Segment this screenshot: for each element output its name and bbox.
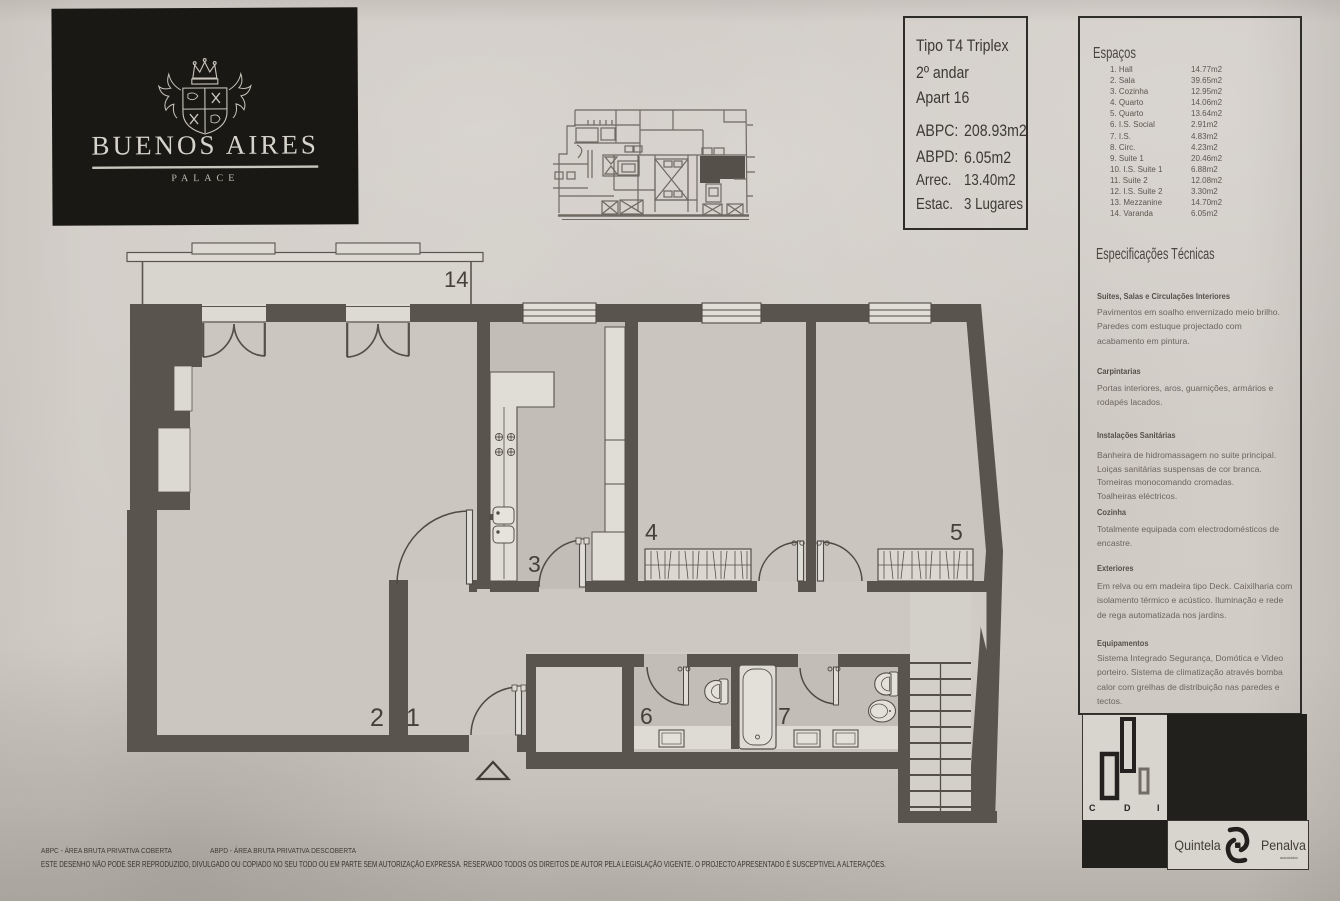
svg-text:4: 4 (645, 519, 658, 545)
svg-text:1: 1 (406, 704, 420, 732)
svg-text:3: 3 (528, 551, 541, 577)
svg-text:C: C (1089, 803, 1096, 813)
svg-text:D: D (1124, 803, 1131, 813)
svg-text:Quintela: Quintela (1174, 838, 1221, 854)
svg-text:2: 2 (370, 704, 384, 732)
svg-text:5: 5 (950, 519, 963, 545)
svg-text:I: I (1157, 803, 1160, 813)
svg-text:Penalva: Penalva (1261, 838, 1307, 854)
svg-text:associados: associados (1280, 856, 1298, 860)
svg-text:7: 7 (778, 703, 791, 729)
svg-text:14: 14 (444, 267, 468, 292)
svg-text:6: 6 (640, 703, 653, 729)
